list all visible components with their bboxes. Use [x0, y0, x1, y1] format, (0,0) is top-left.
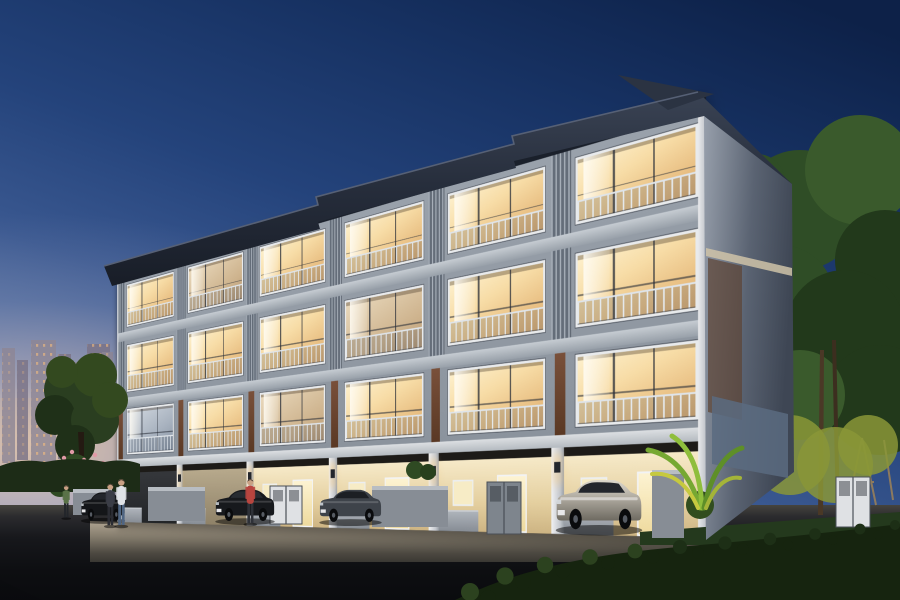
wheel-hub — [261, 512, 264, 517]
hedge-leaf-clump — [890, 520, 900, 530]
boundary-wall — [148, 487, 205, 521]
torso — [247, 486, 254, 504]
headlight — [557, 500, 562, 505]
hedge-leaf-clump — [855, 524, 866, 535]
person-shadow — [61, 517, 71, 520]
hedge-leaf-clump — [496, 567, 513, 584]
roof — [104, 92, 792, 286]
cabinet-vent — [507, 486, 518, 502]
cabinet-vent — [273, 490, 283, 501]
hedge-leaf-clump — [692, 547, 704, 559]
car-shadow — [319, 519, 381, 526]
arm — [124, 487, 126, 500]
car-shadow — [556, 525, 642, 536]
legs — [118, 504, 121, 525]
hedge-leaf-clump — [718, 536, 731, 549]
wheel-hub — [90, 512, 92, 516]
hedge-leaf-clump — [628, 544, 643, 559]
torso — [118, 486, 125, 505]
hedge-leaf-clump — [515, 574, 530, 589]
side-wall-panel — [708, 258, 742, 420]
flower — [93, 453, 97, 457]
shrub — [420, 464, 436, 480]
hedge-leaf-clump — [582, 549, 598, 565]
headlight — [81, 503, 83, 506]
wheel-hub — [332, 513, 335, 518]
license-plate — [558, 510, 565, 515]
cabinet-vent — [289, 490, 299, 501]
arm — [106, 491, 108, 503]
foreground-layer — [0, 0, 900, 600]
hedge-leaf-clump — [556, 564, 570, 578]
legs — [67, 503, 69, 518]
car-highlight — [323, 501, 379, 503]
legs — [107, 506, 110, 525]
headlight — [320, 503, 323, 506]
cabinet-vent — [839, 481, 850, 496]
wall-cap — [148, 487, 205, 491]
arm — [116, 487, 118, 500]
hedge-leaf-clump — [874, 531, 883, 540]
torso — [107, 490, 114, 507]
legs — [122, 504, 125, 525]
legs — [251, 503, 254, 523]
lit-canopy — [838, 415, 898, 475]
person-shadow — [114, 525, 128, 529]
wheel-hub — [573, 515, 578, 523]
hedge-leaf-clump — [647, 551, 660, 564]
arm — [113, 491, 115, 503]
wheel-hub — [227, 512, 230, 517]
arm — [245, 487, 247, 499]
license-plate — [216, 509, 221, 512]
headlight — [216, 502, 219, 505]
hedge-leaf-clump — [461, 583, 479, 600]
car-highlight — [83, 502, 123, 504]
boundary-wall — [372, 486, 448, 527]
tree-canopy — [46, 356, 78, 388]
torso — [64, 490, 69, 503]
person-shadow — [244, 523, 257, 526]
arm — [68, 491, 69, 500]
arm — [253, 487, 255, 499]
legs — [111, 506, 114, 525]
cabinet-vent — [856, 481, 867, 496]
hedge-leaf-clump — [537, 557, 553, 573]
hedge-leaf-clump — [783, 540, 793, 550]
license-plate — [82, 509, 86, 512]
tree-canopy — [92, 382, 128, 418]
wall-cap — [372, 486, 448, 490]
legs — [247, 503, 250, 523]
townhome-dusk-scene — [0, 0, 900, 600]
hedge-leaf-clump — [673, 540, 687, 554]
wheel-hub — [368, 513, 371, 518]
car-highlight — [560, 497, 637, 500]
hedge-leaf-clump — [737, 543, 748, 554]
legs — [64, 503, 66, 518]
license-plate — [321, 509, 326, 512]
wheel-hub — [115, 512, 117, 516]
car-highlight — [218, 501, 271, 503]
hedge-leaf-clump — [828, 535, 838, 545]
car-sedan-black — [215, 490, 275, 525]
cabinet-vent — [490, 486, 501, 502]
car-suv-silver — [556, 480, 642, 536]
arm — [63, 491, 64, 500]
hedge-leaf-clump — [601, 556, 615, 570]
hedge-leaf-clump — [809, 528, 821, 540]
wheel-hub — [623, 515, 628, 523]
hedge-leaf-clump — [764, 533, 776, 545]
flower — [70, 450, 74, 454]
